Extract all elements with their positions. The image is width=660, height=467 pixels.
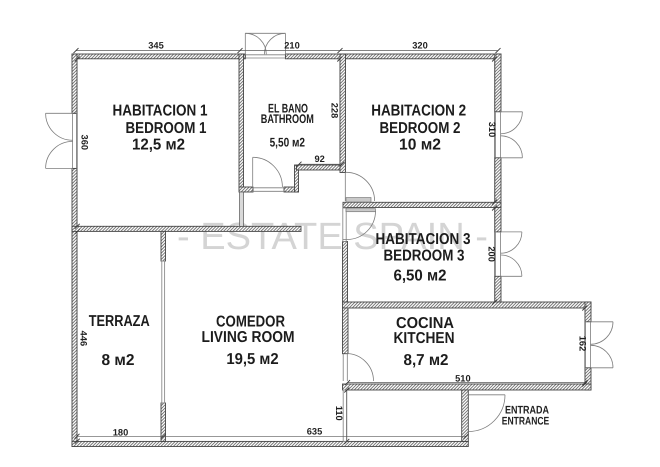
svg-text:635: 635 (307, 427, 323, 437)
svg-text:BEDROOM 3: BEDROOM 3 (384, 248, 465, 265)
svg-text:6,50 м2: 6,50 м2 (394, 268, 447, 285)
svg-text:92: 92 (315, 154, 325, 164)
svg-text:510: 510 (455, 374, 471, 384)
svg-text:228: 228 (330, 103, 340, 119)
svg-text:180: 180 (113, 427, 129, 437)
svg-text:10 м2: 10 м2 (399, 136, 441, 153)
svg-text:8,7 м2: 8,7 м2 (404, 352, 449, 369)
svg-text:210: 210 (284, 41, 300, 51)
svg-text:ENTRANCE: ENTRANCE (502, 416, 550, 428)
svg-text:162: 162 (578, 336, 588, 352)
svg-text:19,5 м2: 19,5 м2 (226, 351, 278, 368)
svg-text:310: 310 (487, 122, 497, 138)
svg-text:HABITACION 1: HABITACION 1 (113, 103, 208, 120)
svg-text:BEDROOM 2: BEDROOM 2 (380, 120, 461, 137)
svg-text:12,5 м2: 12,5 м2 (132, 136, 185, 153)
svg-text:320: 320 (412, 41, 428, 51)
svg-text:COMEDOR: COMEDOR (216, 314, 285, 331)
svg-text:200: 200 (487, 246, 497, 262)
svg-text:KITCHEN: KITCHEN (394, 330, 455, 347)
svg-text:360: 360 (80, 135, 90, 151)
svg-text:BEDROOM 1: BEDROOM 1 (126, 120, 207, 137)
svg-text:110: 110 (334, 406, 344, 421)
svg-text:HABITACION 2: HABITACION 2 (371, 103, 466, 120)
svg-text:TERRAZA: TERRAZA (89, 313, 150, 330)
svg-text:345: 345 (148, 41, 164, 51)
svg-text:BATHROOM: BATHROOM (261, 112, 314, 126)
svg-text:446: 446 (79, 331, 89, 347)
svg-text:5,50 м2: 5,50 м2 (270, 136, 305, 150)
svg-text:LIVING ROOM: LIVING ROOM (202, 329, 295, 346)
svg-text:HABITACION 3: HABITACION 3 (376, 231, 471, 248)
svg-text:8 м2: 8 м2 (102, 352, 135, 369)
